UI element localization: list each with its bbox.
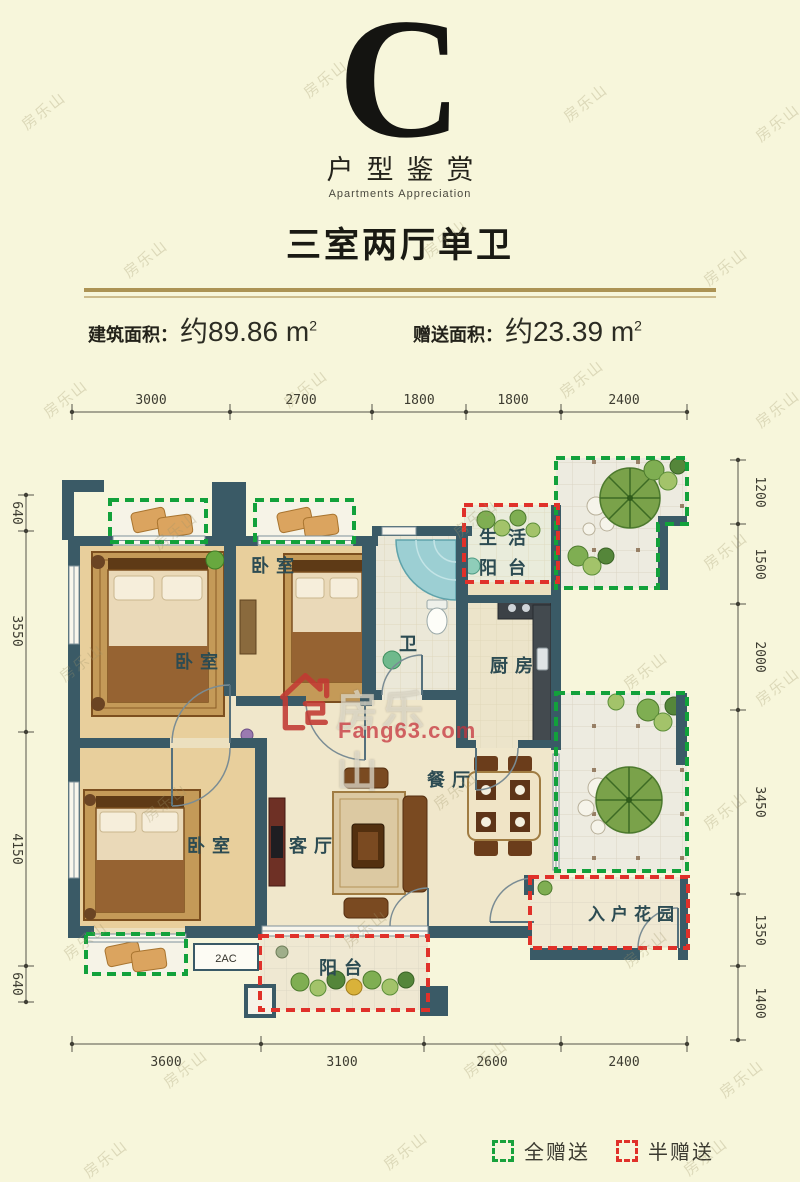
room-label-service-2: 阳台 bbox=[479, 557, 537, 578]
dining-set bbox=[468, 756, 540, 856]
gift-area: 赠送面积： 约23.39 m2 bbox=[413, 310, 642, 350]
ac-platform: 2AC bbox=[194, 944, 258, 970]
room-label-bedroom-bottom: 卧室 bbox=[187, 835, 237, 856]
room-label-entry-garden: 入户花园 bbox=[588, 904, 680, 924]
dim-label: 2400 bbox=[608, 393, 639, 408]
poster: C 户型鉴赏 Apartments Appreciation 三室两厅单卫 建筑… bbox=[0, 0, 800, 1182]
half-gift-swatch bbox=[616, 1140, 638, 1162]
dim-labels-top: 3000 2700 1800 1800 2400 bbox=[135, 393, 639, 408]
dim-label: 1800 bbox=[403, 393, 434, 408]
plan-letter: C bbox=[0, 0, 800, 158]
dim-label: 3100 bbox=[326, 1055, 357, 1070]
dim-labels-left: 640 3550 4150 640 bbox=[9, 501, 24, 995]
room-label-balcony: 阳台 bbox=[319, 957, 369, 978]
built-area-label: 建筑面积： bbox=[88, 321, 178, 347]
dim-label: 640 bbox=[9, 972, 24, 995]
dim-label: 1350 bbox=[752, 914, 767, 945]
watermark-text: 房乐山 bbox=[79, 1135, 132, 1182]
dim-labels-right: 1200 1500 2000 3450 1350 1400 bbox=[752, 476, 767, 1018]
built-area-value: 约89.86 m2 bbox=[180, 310, 317, 350]
room-label-dining: 餐厅 bbox=[426, 769, 477, 790]
watermark-text: 房乐山 bbox=[379, 1127, 432, 1175]
full-gift-swatch bbox=[492, 1140, 514, 1162]
subtitle-en: Apartments Appreciation bbox=[0, 188, 800, 200]
room-label-bedroom-top: 卧室 bbox=[251, 555, 301, 576]
dim-labels-bottom: 3600 3100 2600 2400 bbox=[150, 1055, 639, 1070]
header: C 户型鉴赏 Apartments Appreciation 三室两厅单卫 建筑… bbox=[0, 0, 800, 350]
floor-plan: 2AC 卧室 卧室 卧室 卫 厨房 餐厅 客厅 阳台 入户花园 生活 阳台 bbox=[0, 380, 800, 1100]
room-label-kitchen: 厨房 bbox=[490, 655, 540, 676]
page-title: 三室两厅单卫 bbox=[0, 217, 800, 268]
gift-area-value: 约23.39 m2 bbox=[505, 310, 642, 350]
dim-label: 2400 bbox=[608, 1055, 639, 1070]
built-area: 建筑面积： 约89.86 m2 bbox=[88, 310, 317, 350]
dim-label: 1400 bbox=[752, 987, 767, 1018]
room-label-service-1: 生活 bbox=[479, 527, 537, 548]
room-label-living: 客厅 bbox=[289, 835, 339, 856]
full-gift-label: 全赠送 bbox=[524, 1136, 590, 1165]
dim-label: 3550 bbox=[9, 615, 24, 646]
gift-area-label: 赠送面积： bbox=[413, 321, 503, 347]
dim-label: 1500 bbox=[752, 548, 767, 579]
dim-label: 4150 bbox=[9, 833, 24, 864]
dim-label: 3600 bbox=[150, 1055, 181, 1070]
bed-bottom bbox=[84, 790, 200, 920]
dim-label: 640 bbox=[9, 501, 24, 524]
room-label-bedroom-left: 卧室 bbox=[175, 651, 225, 672]
dim-label: 1200 bbox=[752, 476, 767, 507]
dim-label: 2000 bbox=[752, 641, 767, 672]
dim-label: 1800 bbox=[497, 393, 528, 408]
half-gift-label: 半赠送 bbox=[648, 1136, 714, 1165]
dim-label: 3450 bbox=[752, 786, 767, 817]
subtitle-cn: 户型鉴赏 bbox=[0, 148, 800, 187]
ac-label: 2AC bbox=[215, 953, 236, 965]
dim-label: 3000 bbox=[135, 393, 166, 408]
gift-legend: 全赠送 半赠送 bbox=[492, 1136, 714, 1165]
gold-divider bbox=[84, 288, 716, 298]
room-label-bath: 卫 bbox=[399, 634, 417, 654]
dim-label: 2600 bbox=[476, 1055, 507, 1070]
area-row: 建筑面积： 约89.86 m2 赠送面积： 约23.39 m2 bbox=[88, 310, 800, 350]
dim-label: 2700 bbox=[285, 393, 316, 408]
